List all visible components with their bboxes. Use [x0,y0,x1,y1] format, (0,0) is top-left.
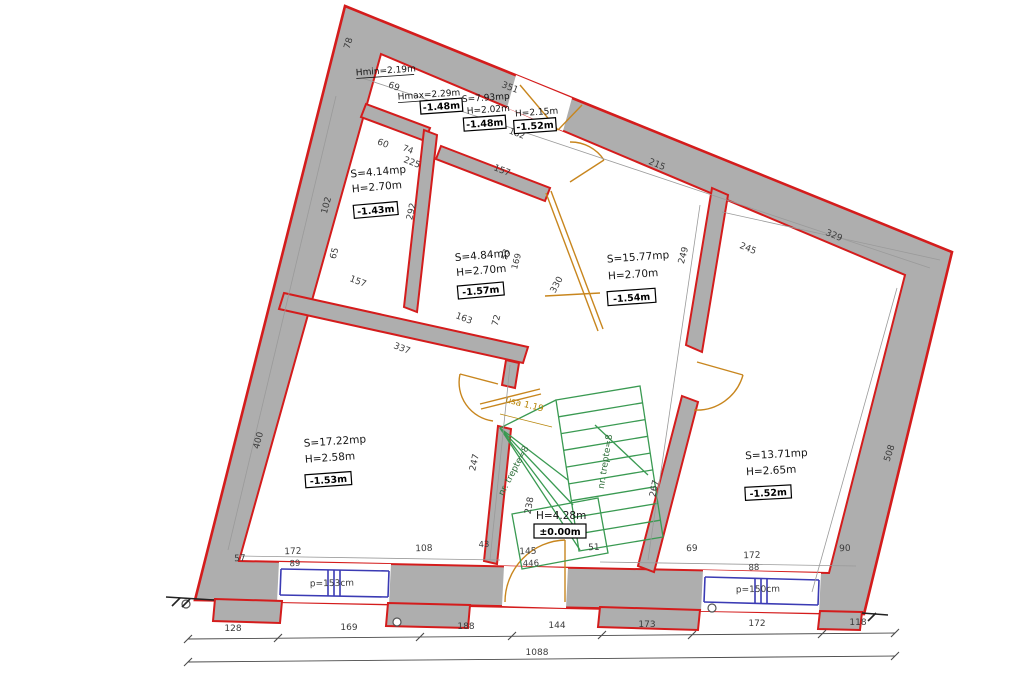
dim-label: 90 [839,544,851,554]
stair-labels: nr. trepte=8 nr. trepte=8 H=4.28m ±0.00m… [497,396,615,538]
left-room-door-leaf [460,374,498,384]
dim-label: 72 [491,314,504,328]
dim-label: 108 [415,544,433,555]
room-big-right-labels: S=13.71mp H=2.65m -1.52m [743,447,810,500]
room-height-label: H=2.58m [305,450,356,465]
dim-total-label: 1088 [526,648,549,658]
dim-label: 188 [457,622,474,632]
room-height-label: H=2.70m [608,267,659,282]
room-small-mid-labels: S=4.84mp H=2.70m -1.57m [454,247,514,299]
wall-center-right-upper [686,188,728,352]
dim-label: 173 [638,620,655,630]
ground-hatch [172,598,180,606]
dim-label: 69 [686,544,698,554]
room-area-label: S=15.77mp [606,249,669,265]
window-parapet-label: p=150cm [736,585,780,596]
dim-label: 157 [348,274,368,289]
room-big-left-labels: S=17.22mp H=2.58m -1.53m [302,433,369,487]
dim-label: 88 [748,563,759,573]
window-parapet-label: p=153cm [310,579,354,590]
room-level-label: -1.57m [462,284,500,298]
wall-stair-left-upper [502,360,519,388]
dim-label: 74 [401,144,415,157]
floor-plan-canvas: 128 169 188 144 173 172 118 1088 78 69 3… [0,0,1024,675]
stair-level-label: ±0.00m [539,527,580,538]
dim-label: 245 [738,241,758,257]
right-room-door-leaf [697,362,743,375]
pilaster [213,599,282,623]
room-level-label: -1.52m [749,487,787,500]
dim-label: 247 [468,453,482,472]
room-center-labels: S=15.77mp H=2.70m -1.54m [604,249,672,305]
dim-label: 172 [748,619,765,629]
dim-label: 60 [376,137,391,151]
floor-plan-drawing: 128 169 188 144 173 172 118 1088 78 69 3… [0,0,1024,675]
dim-label: 446 [523,559,540,570]
room-height-label: H=2.70m [351,179,402,195]
partition-wall [551,191,603,329]
dim-label: 118 [849,618,866,628]
dim-label: 330 [549,275,566,295]
underline [500,414,552,427]
dim-label: 89 [289,559,300,569]
stair-height-label: H=4.28m [536,510,586,522]
dim-label: 172 [284,547,302,558]
dim-label: 57 [234,554,246,564]
wall-top-room-small-left [361,104,430,141]
room-small-left-labels: S=4.14mp H=2.70m -1.43m [350,164,410,219]
column-symbol [393,618,401,626]
column-symbol [708,604,716,612]
dim-label: 128 [224,624,241,634]
dim-label: 163 [454,311,474,326]
room-area-label: S=13.71mp [745,447,808,462]
dim-label: 337 [392,341,412,356]
dim-label: 51 [588,543,600,553]
room-area-label: S=4.84mp [454,247,511,264]
room-area-label: S=4.14mp [350,164,407,181]
dim-label: 249 [677,246,691,265]
room-area-label: S=17.22mp [303,433,366,449]
partition-wall [546,193,598,331]
room-level-label: -1.43m [357,204,395,218]
right-room-door-arc [694,375,743,410]
dim-label: 238 [524,496,537,515]
dim-label: 169 [340,623,357,633]
room-height-label: H=2.70m [456,263,507,279]
staircase [500,386,663,569]
dim-label: 144 [548,621,565,631]
corridor-door-leaf [570,160,604,182]
wall-top-room-small-mid [436,146,550,201]
dim-label: 65 [329,247,342,261]
dim-label: 169 [510,252,524,270]
dim-label: 172 [743,551,761,562]
dim-label: 43 [478,540,489,550]
room-height-label: H=2.65m [746,464,797,479]
dim-label: 145 [519,547,537,558]
